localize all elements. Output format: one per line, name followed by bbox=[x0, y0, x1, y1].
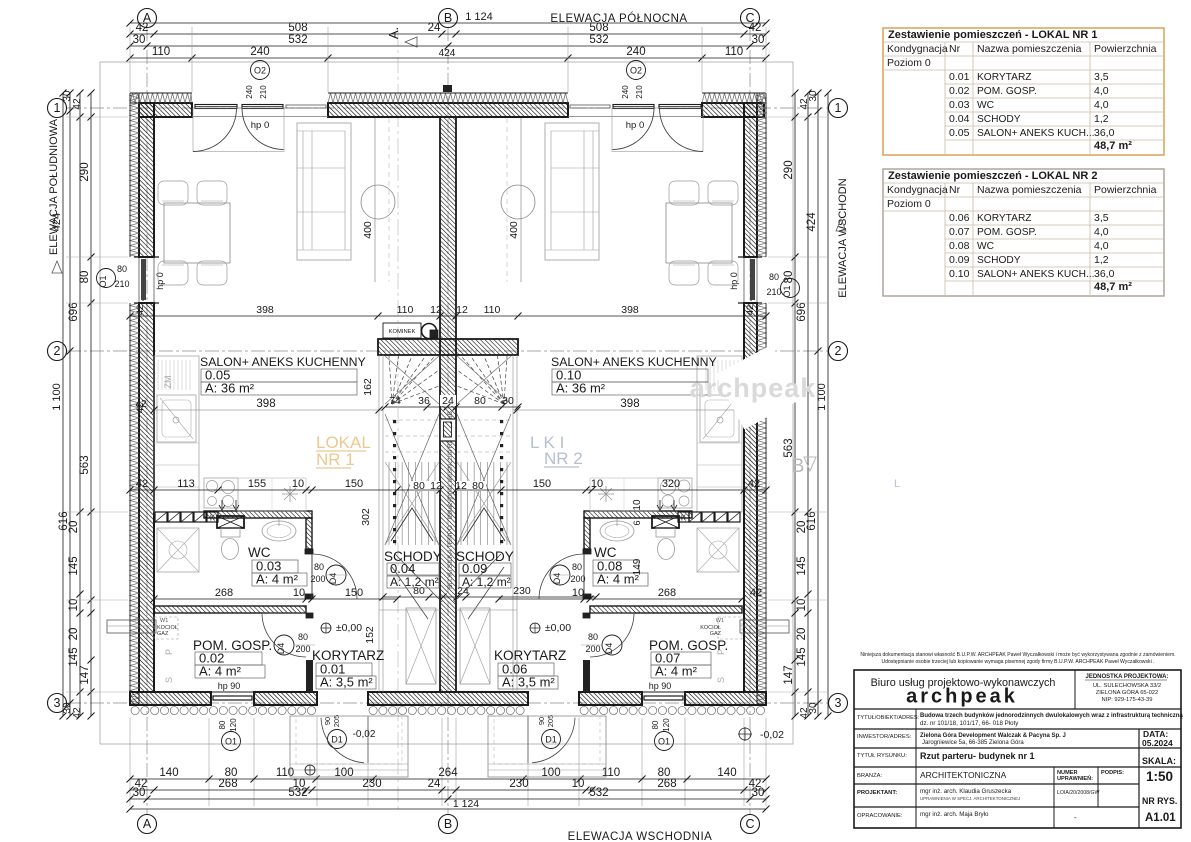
svg-text:W1: W1 bbox=[716, 618, 724, 624]
svg-text:Zielona Góra Development Walcz: Zielona Góra Development Walczak & Pacyn… bbox=[920, 733, 1066, 739]
svg-text:A: 4 m²: A: 4 m² bbox=[256, 572, 299, 587]
svg-text:O1: O1 bbox=[98, 275, 108, 287]
svg-text:145: 145 bbox=[68, 556, 80, 575]
svg-text:42: 42 bbox=[799, 707, 810, 719]
svg-text:30: 30 bbox=[133, 34, 146, 46]
svg-text:0.08: 0.08 bbox=[949, 240, 970, 252]
svg-text:36,0: 36,0 bbox=[1094, 268, 1115, 280]
svg-text:D4: D4 bbox=[604, 643, 614, 655]
svg-text:200: 200 bbox=[570, 574, 585, 584]
svg-text:4,0: 4,0 bbox=[1094, 99, 1109, 111]
svg-text:205: 205 bbox=[332, 715, 341, 728]
svg-text:268: 268 bbox=[657, 778, 676, 790]
svg-text:10: 10 bbox=[572, 587, 584, 599]
svg-text:80: 80 bbox=[783, 271, 795, 284]
svg-text:KORYTARZ: KORYTARZ bbox=[977, 213, 1032, 224]
svg-text:NIP: 929-175-43-39: NIP: 929-175-43-39 bbox=[1102, 697, 1153, 703]
svg-text:PROJEKTANT:: PROJEKTANT: bbox=[857, 790, 897, 796]
svg-text:24: 24 bbox=[442, 395, 454, 407]
svg-text:400: 400 bbox=[508, 221, 520, 239]
svg-text:230: 230 bbox=[362, 778, 381, 790]
svg-text:20: 20 bbox=[68, 521, 80, 534]
svg-text:-0,02: -0,02 bbox=[353, 729, 376, 740]
svg-text:Kondygnacja: Kondygnacja bbox=[887, 43, 948, 55]
svg-text:147: 147 bbox=[79, 665, 91, 684]
svg-text:KOMINEK: KOMINEK bbox=[389, 329, 416, 335]
svg-text:A.: A. bbox=[386, 27, 401, 39]
svg-text:2: 2 bbox=[54, 344, 61, 358]
svg-text:0.03: 0.03 bbox=[949, 99, 970, 111]
svg-text:D1: D1 bbox=[331, 735, 343, 745]
svg-text:42: 42 bbox=[799, 98, 810, 110]
svg-text:SALON+ ANEKS KUCH...: SALON+ ANEKS KUCH... bbox=[977, 128, 1094, 139]
svg-text:UPRAWNIEŃ:: UPRAWNIEŃ: bbox=[1057, 774, 1093, 782]
svg-text:90: 90 bbox=[323, 717, 332, 725]
svg-text:S: S bbox=[164, 677, 174, 683]
svg-text:200: 200 bbox=[295, 644, 310, 654]
svg-text:SALON+ ANEKS KUCH...: SALON+ ANEKS KUCH... bbox=[977, 269, 1094, 280]
svg-text:B: B bbox=[792, 456, 805, 477]
svg-text:508: 508 bbox=[288, 22, 307, 34]
svg-text:80: 80 bbox=[79, 271, 91, 284]
svg-text:1: 1 bbox=[835, 101, 842, 115]
svg-text:205: 205 bbox=[546, 715, 555, 728]
svg-text:A: 36 m²: A: 36 m² bbox=[556, 381, 606, 396]
svg-text:0.01: 0.01 bbox=[949, 71, 970, 83]
svg-text:398: 398 bbox=[256, 398, 275, 410]
svg-text:10: 10 bbox=[293, 587, 305, 599]
svg-text:398: 398 bbox=[621, 304, 639, 316]
svg-text:K: K bbox=[210, 514, 216, 523]
svg-text:A: 1,2 m²: A: 1,2 m² bbox=[462, 575, 511, 589]
svg-text:398: 398 bbox=[256, 304, 274, 316]
svg-text:268: 268 bbox=[218, 778, 237, 790]
svg-text:POM. GOSP.: POM. GOSP. bbox=[977, 86, 1037, 97]
svg-text:110: 110 bbox=[397, 304, 414, 316]
svg-text:162: 162 bbox=[362, 378, 374, 396]
svg-text:GAZ: GAZ bbox=[157, 631, 169, 637]
svg-text:140: 140 bbox=[717, 767, 736, 779]
svg-text:A: 1,2 m²: A: 1,2 m² bbox=[390, 575, 439, 589]
svg-text:268: 268 bbox=[215, 587, 233, 599]
svg-text:240: 240 bbox=[250, 46, 269, 58]
svg-text:hp 90: hp 90 bbox=[218, 681, 241, 691]
svg-text:563: 563 bbox=[783, 438, 795, 457]
svg-text:Nr: Nr bbox=[949, 184, 961, 196]
svg-text:149: 149 bbox=[632, 558, 643, 575]
svg-text:Nazwa pomieszczenia: Nazwa pomieszczenia bbox=[977, 43, 1082, 55]
svg-text:42: 42 bbox=[749, 22, 762, 34]
svg-text:42: 42 bbox=[750, 587, 762, 599]
svg-text:532: 532 bbox=[288, 787, 307, 799]
svg-text:80: 80 bbox=[218, 720, 227, 729]
svg-text:42: 42 bbox=[136, 478, 148, 490]
svg-text:INWESTOR/ADRES:: INWESTOR/ADRES: bbox=[857, 734, 912, 740]
svg-text:NR 2: NR 2 bbox=[544, 449, 583, 468]
svg-text:210: 210 bbox=[114, 279, 129, 289]
svg-text:1: 1 bbox=[54, 101, 61, 115]
svg-text:PODPIS:: PODPIS: bbox=[1101, 770, 1124, 776]
svg-text:120: 120 bbox=[229, 718, 238, 732]
svg-text:563: 563 bbox=[79, 455, 91, 474]
svg-text:A1.01: A1.01 bbox=[1145, 812, 1176, 824]
svg-text:ELEWACJA POŁUDNIOWA: ELEWACJA POŁUDNIOWA bbox=[48, 118, 60, 255]
svg-text:Jarogniewice 5a, 66-385 Zielon: Jarogniewice 5a, 66-385 Zielona Góra bbox=[922, 740, 1024, 746]
svg-text:80: 80 bbox=[117, 264, 127, 274]
svg-text:A: 3,5 m²: A: 3,5 m² bbox=[502, 675, 555, 690]
svg-text:A: A bbox=[143, 817, 152, 831]
svg-text:A: 3,5 m²: A: 3,5 m² bbox=[320, 675, 373, 690]
svg-text:-0,02: -0,02 bbox=[760, 729, 784, 741]
svg-text:mgr inż. arch. Klaudia Gruszec: mgr inż. arch. Klaudia Gruszecka bbox=[920, 788, 1012, 795]
svg-text:80: 80 bbox=[314, 562, 324, 572]
svg-text:POM. GOSP.: POM. GOSP. bbox=[977, 227, 1037, 238]
svg-text:1:50: 1:50 bbox=[1146, 769, 1173, 784]
svg-text:6: 6 bbox=[632, 520, 642, 525]
svg-text:24: 24 bbox=[428, 778, 441, 790]
svg-text:140: 140 bbox=[159, 767, 178, 779]
svg-text:532: 532 bbox=[589, 787, 608, 799]
svg-text:80: 80 bbox=[588, 632, 598, 642]
svg-text:48,7 m²: 48,7 m² bbox=[1094, 140, 1132, 152]
svg-text:B: B bbox=[444, 817, 452, 831]
svg-text:K: K bbox=[681, 514, 687, 523]
svg-text:3: 3 bbox=[835, 696, 842, 710]
svg-text:D4: D4 bbox=[328, 573, 338, 585]
svg-text:80: 80 bbox=[298, 632, 308, 642]
svg-text:NR RYS.: NR RYS. bbox=[1142, 796, 1177, 806]
svg-text:Budowa trzech budynków jednoro: Budowa trzech budynków jednorodzinnych d… bbox=[920, 713, 1183, 719]
svg-text:0.04: 0.04 bbox=[390, 561, 415, 576]
svg-text:UPRAWNIENIA W SPECJ. ARCHITEKT: UPRAWNIENIA W SPECJ. ARCHITEKTONICZNEJ bbox=[920, 796, 1020, 801]
svg-text:230: 230 bbox=[509, 778, 528, 790]
svg-text:3,5: 3,5 bbox=[1094, 212, 1109, 224]
svg-text:36: 36 bbox=[418, 395, 430, 407]
svg-text:400: 400 bbox=[362, 221, 374, 239]
svg-text:150: 150 bbox=[533, 478, 551, 490]
svg-text:05.2024: 05.2024 bbox=[1142, 738, 1173, 748]
svg-text:KORYTARZ: KORYTARZ bbox=[977, 72, 1032, 83]
svg-text:30: 30 bbox=[752, 787, 765, 799]
svg-text:±0,00: ±0,00 bbox=[545, 622, 571, 634]
svg-text:D4: D4 bbox=[552, 573, 562, 585]
svg-text:264: 264 bbox=[438, 767, 458, 779]
svg-text:10: 10 bbox=[572, 778, 585, 790]
svg-text:C: C bbox=[745, 817, 754, 831]
svg-text:O1: O1 bbox=[658, 737, 670, 747]
svg-text:150: 150 bbox=[345, 587, 363, 599]
svg-text:archpeak: archpeak bbox=[690, 373, 817, 403]
svg-text:0.10: 0.10 bbox=[949, 268, 970, 280]
svg-text:120: 120 bbox=[662, 718, 671, 732]
svg-text:110: 110 bbox=[725, 46, 743, 58]
svg-text:210: 210 bbox=[766, 287, 781, 297]
svg-text:UL. SULECHOWSKA 33/2: UL. SULECHOWSKA 33/2 bbox=[1093, 683, 1161, 689]
svg-text:WC: WC bbox=[977, 241, 994, 252]
svg-text:398: 398 bbox=[620, 398, 639, 410]
svg-text:696: 696 bbox=[68, 302, 80, 321]
svg-text:10: 10 bbox=[591, 478, 603, 490]
svg-text:696: 696 bbox=[796, 302, 808, 321]
svg-text:24: 24 bbox=[428, 22, 441, 34]
svg-text:WC: WC bbox=[977, 100, 994, 111]
svg-text:Rzut parteru- budynek nr 1: Rzut parteru- budynek nr 1 bbox=[920, 751, 1035, 761]
svg-text:42: 42 bbox=[135, 399, 147, 410]
svg-text:3: 3 bbox=[54, 696, 61, 710]
svg-text:90: 90 bbox=[537, 717, 546, 725]
svg-text:508: 508 bbox=[589, 22, 608, 34]
svg-text:1 124: 1 124 bbox=[465, 11, 493, 23]
svg-text:30: 30 bbox=[133, 787, 146, 799]
svg-text:152: 152 bbox=[364, 626, 376, 644]
svg-text:210: 210 bbox=[635, 85, 644, 99]
svg-text:150: 150 bbox=[345, 478, 363, 490]
svg-text:hp 0: hp 0 bbox=[155, 272, 165, 290]
svg-text:D1: D1 bbox=[545, 735, 557, 745]
svg-text:155: 155 bbox=[248, 478, 266, 490]
svg-text:TYTUŁ/OBIEKT/ADRES:: TYTUŁ/OBIEKT/ADRES: bbox=[857, 715, 920, 721]
svg-text:0.09: 0.09 bbox=[462, 561, 487, 576]
svg-text:O1: O1 bbox=[225, 737, 237, 747]
svg-text:30: 30 bbox=[752, 34, 765, 46]
svg-text:424: 424 bbox=[439, 48, 456, 59]
svg-text:20: 20 bbox=[796, 628, 808, 641]
svg-text:302: 302 bbox=[360, 508, 372, 526]
svg-text:0.02: 0.02 bbox=[949, 85, 970, 97]
svg-text:mgr inż. arch. Maja Bryło: mgr inż. arch. Maja Bryło bbox=[920, 811, 989, 818]
svg-text:W1: W1 bbox=[160, 618, 168, 624]
svg-text:110: 110 bbox=[152, 46, 170, 58]
svg-text:Powierzchnia: Powierzchnia bbox=[1094, 43, 1157, 55]
svg-text:Niniejsza dokumentacja stanowi: Niniejsza dokumentacja stanowi własność … bbox=[860, 652, 1175, 658]
svg-text:Zestawienie pomieszczeń - LOKA: Zestawienie pomieszczeń - LOKAL NR 2 bbox=[888, 170, 1097, 182]
svg-text:10: 10 bbox=[68, 599, 80, 612]
svg-text:80: 80 bbox=[769, 272, 779, 282]
svg-text:O2: O2 bbox=[630, 66, 642, 76]
svg-text:0.07: 0.07 bbox=[949, 226, 970, 238]
svg-text:20: 20 bbox=[68, 628, 80, 641]
svg-text:268: 268 bbox=[658, 587, 676, 599]
svg-text:Nazwa pomieszczenia: Nazwa pomieszczenia bbox=[977, 184, 1082, 196]
svg-text:3,5: 3,5 bbox=[1094, 71, 1109, 83]
svg-text:36,0: 36,0 bbox=[1094, 127, 1115, 139]
svg-text:O2: O2 bbox=[254, 66, 266, 76]
svg-text:Powierzchnia: Powierzchnia bbox=[1094, 184, 1157, 196]
svg-text:110: 110 bbox=[484, 304, 501, 316]
svg-text:290: 290 bbox=[79, 162, 91, 181]
svg-text:20: 20 bbox=[796, 521, 808, 534]
svg-text:ZM: ZM bbox=[163, 376, 173, 389]
svg-text:A: 4 m²: A: 4 m² bbox=[199, 664, 242, 679]
svg-text:48,7 m²: 48,7 m² bbox=[1094, 281, 1132, 293]
svg-text:1,2: 1,2 bbox=[1094, 254, 1109, 266]
svg-text:4,0: 4,0 bbox=[1094, 85, 1109, 97]
svg-text:Udostępnianie osobie trzeciej: Udostępnianie osobie trzeciej lub kopiow… bbox=[881, 659, 1154, 665]
svg-text:240: 240 bbox=[245, 85, 254, 99]
svg-text:424: 424 bbox=[51, 213, 63, 231]
svg-text:SCHODY: SCHODY bbox=[977, 255, 1021, 266]
svg-text:D4: D4 bbox=[276, 643, 286, 655]
svg-text:0.04: 0.04 bbox=[949, 113, 970, 125]
svg-text:Kondygnacja: Kondygnacja bbox=[887, 184, 948, 196]
svg-text:JEDNOSTKA PROJEKTOWA:: JEDNOSTKA PROJEKTOWA: bbox=[1085, 674, 1168, 680]
svg-text:74: 74 bbox=[389, 395, 401, 407]
svg-text:Nr: Nr bbox=[949, 43, 961, 55]
svg-text:P: P bbox=[164, 649, 174, 655]
svg-text:S: S bbox=[716, 677, 726, 683]
svg-text:hp 0: hp 0 bbox=[251, 120, 270, 131]
svg-text:0.06: 0.06 bbox=[949, 212, 970, 224]
svg-text:10: 10 bbox=[292, 478, 304, 490]
svg-text:240: 240 bbox=[621, 85, 630, 99]
svg-text:SCHODY: SCHODY bbox=[977, 114, 1021, 125]
svg-text:2: 2 bbox=[835, 344, 842, 358]
svg-text:1,2: 1,2 bbox=[1094, 113, 1109, 125]
svg-text:4,0: 4,0 bbox=[1094, 240, 1109, 252]
svg-text:±0,00: ±0,00 bbox=[336, 622, 362, 634]
svg-text:320: 320 bbox=[662, 478, 680, 490]
svg-text:ZIELONA GÓRA 65-022: ZIELONA GÓRA 65-022 bbox=[1096, 689, 1159, 696]
svg-text:10: 10 bbox=[632, 499, 643, 511]
svg-text:12: 12 bbox=[430, 304, 442, 316]
svg-text:1 124: 1 124 bbox=[453, 798, 479, 810]
svg-text:200: 200 bbox=[585, 644, 600, 654]
svg-text:210: 210 bbox=[259, 85, 268, 99]
svg-text:80: 80 bbox=[651, 720, 660, 729]
svg-text:0.05: 0.05 bbox=[949, 127, 970, 139]
svg-text:80: 80 bbox=[474, 395, 486, 407]
svg-text:12: 12 bbox=[456, 304, 468, 316]
svg-text:532: 532 bbox=[589, 34, 608, 46]
svg-text:80: 80 bbox=[572, 562, 582, 572]
svg-text:1 100: 1 100 bbox=[51, 383, 63, 411]
svg-text:L: L bbox=[894, 478, 900, 490]
svg-text:30: 30 bbox=[502, 395, 514, 407]
svg-text:230: 230 bbox=[513, 585, 531, 597]
svg-text:A: 4 m²: A: 4 m² bbox=[655, 664, 698, 679]
svg-text:42: 42 bbox=[72, 707, 83, 719]
svg-text:200: 200 bbox=[310, 574, 325, 584]
svg-text:240: 240 bbox=[626, 46, 645, 58]
svg-text:ELEWACJA WSCHODN: ELEWACJA WSCHODN bbox=[837, 178, 849, 297]
svg-text:SKALA:: SKALA: bbox=[1142, 756, 1176, 766]
svg-text:147: 147 bbox=[783, 665, 795, 684]
svg-text:dz. nr 101/18, 101/17, 66- 018: dz. nr 101/18, 101/17, 66- 018 Płoty bbox=[920, 720, 1019, 727]
svg-text:42: 42 bbox=[136, 22, 149, 34]
svg-text:archpeak: archpeak bbox=[906, 686, 1018, 708]
svg-text:532: 532 bbox=[288, 34, 307, 46]
svg-text:113: 113 bbox=[177, 478, 195, 490]
svg-text:OPRACOWANIE:: OPRACOWANIE: bbox=[857, 813, 903, 819]
svg-text:GAZ: GAZ bbox=[710, 631, 722, 637]
svg-text:0.09: 0.09 bbox=[949, 254, 970, 266]
svg-text:ARCHITEKTONICZNA: ARCHITEKTONICZNA bbox=[920, 770, 1007, 780]
svg-text:Zestawienie pomieszczeń - LOKA: Zestawienie pomieszczeń - LOKAL NR 1 bbox=[888, 29, 1097, 41]
svg-text:LOIA/20/2008/GW: LOIA/20/2008/GW bbox=[1057, 790, 1099, 796]
svg-text:hp 0: hp 0 bbox=[626, 120, 645, 131]
svg-text:4,0: 4,0 bbox=[1094, 226, 1109, 238]
svg-text:Poziom 0: Poziom 0 bbox=[887, 198, 931, 210]
svg-text:290: 290 bbox=[783, 160, 795, 179]
svg-text:Poziom 0: Poziom 0 bbox=[887, 57, 931, 69]
svg-text:145: 145 bbox=[68, 647, 80, 666]
svg-text:O1: O1 bbox=[782, 285, 792, 297]
svg-text:ELEWACJA WSCHODNIA: ELEWACJA WSCHODNIA bbox=[568, 831, 713, 842]
svg-text:BRANŻA:: BRANŻA: bbox=[857, 772, 883, 779]
svg-text:hp 90: hp 90 bbox=[649, 681, 672, 691]
svg-text:NR 1: NR 1 bbox=[316, 450, 355, 469]
svg-text:TYTUŁ RYSUNKU:: TYTUŁ RYSUNKU: bbox=[857, 753, 907, 759]
svg-text:42: 42 bbox=[748, 478, 760, 490]
svg-text:-: - bbox=[1074, 813, 1077, 822]
svg-text:145: 145 bbox=[796, 556, 808, 575]
svg-text:42: 42 bbox=[72, 98, 83, 110]
svg-text:A: 36 m²: A: 36 m² bbox=[205, 381, 255, 396]
